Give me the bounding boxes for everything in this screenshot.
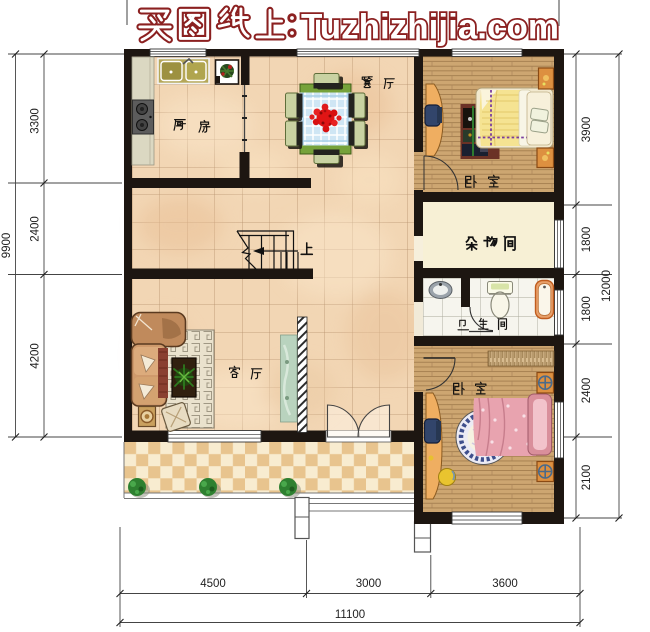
svg-text:3900: 3900 xyxy=(581,117,593,143)
svg-text:1800: 1800 xyxy=(581,296,593,322)
svg-text:3000: 3000 xyxy=(356,578,382,590)
svg-text:3600: 3600 xyxy=(492,578,518,590)
svg-text:2400: 2400 xyxy=(30,216,42,242)
svg-text:9900: 9900 xyxy=(1,233,13,259)
svg-text:12000: 12000 xyxy=(601,270,613,302)
svg-text:1800: 1800 xyxy=(581,227,593,253)
svg-text:2400: 2400 xyxy=(581,378,593,404)
svg-text:11100: 11100 xyxy=(335,609,365,621)
svg-text:3300: 3300 xyxy=(30,108,42,134)
svg-text:2100: 2100 xyxy=(581,465,593,491)
svg-text:4500: 4500 xyxy=(200,578,226,590)
svg-text:4200: 4200 xyxy=(30,343,42,369)
svg-text:Tuzhizhijia.com: Tuzhizhijia.com xyxy=(301,8,559,47)
